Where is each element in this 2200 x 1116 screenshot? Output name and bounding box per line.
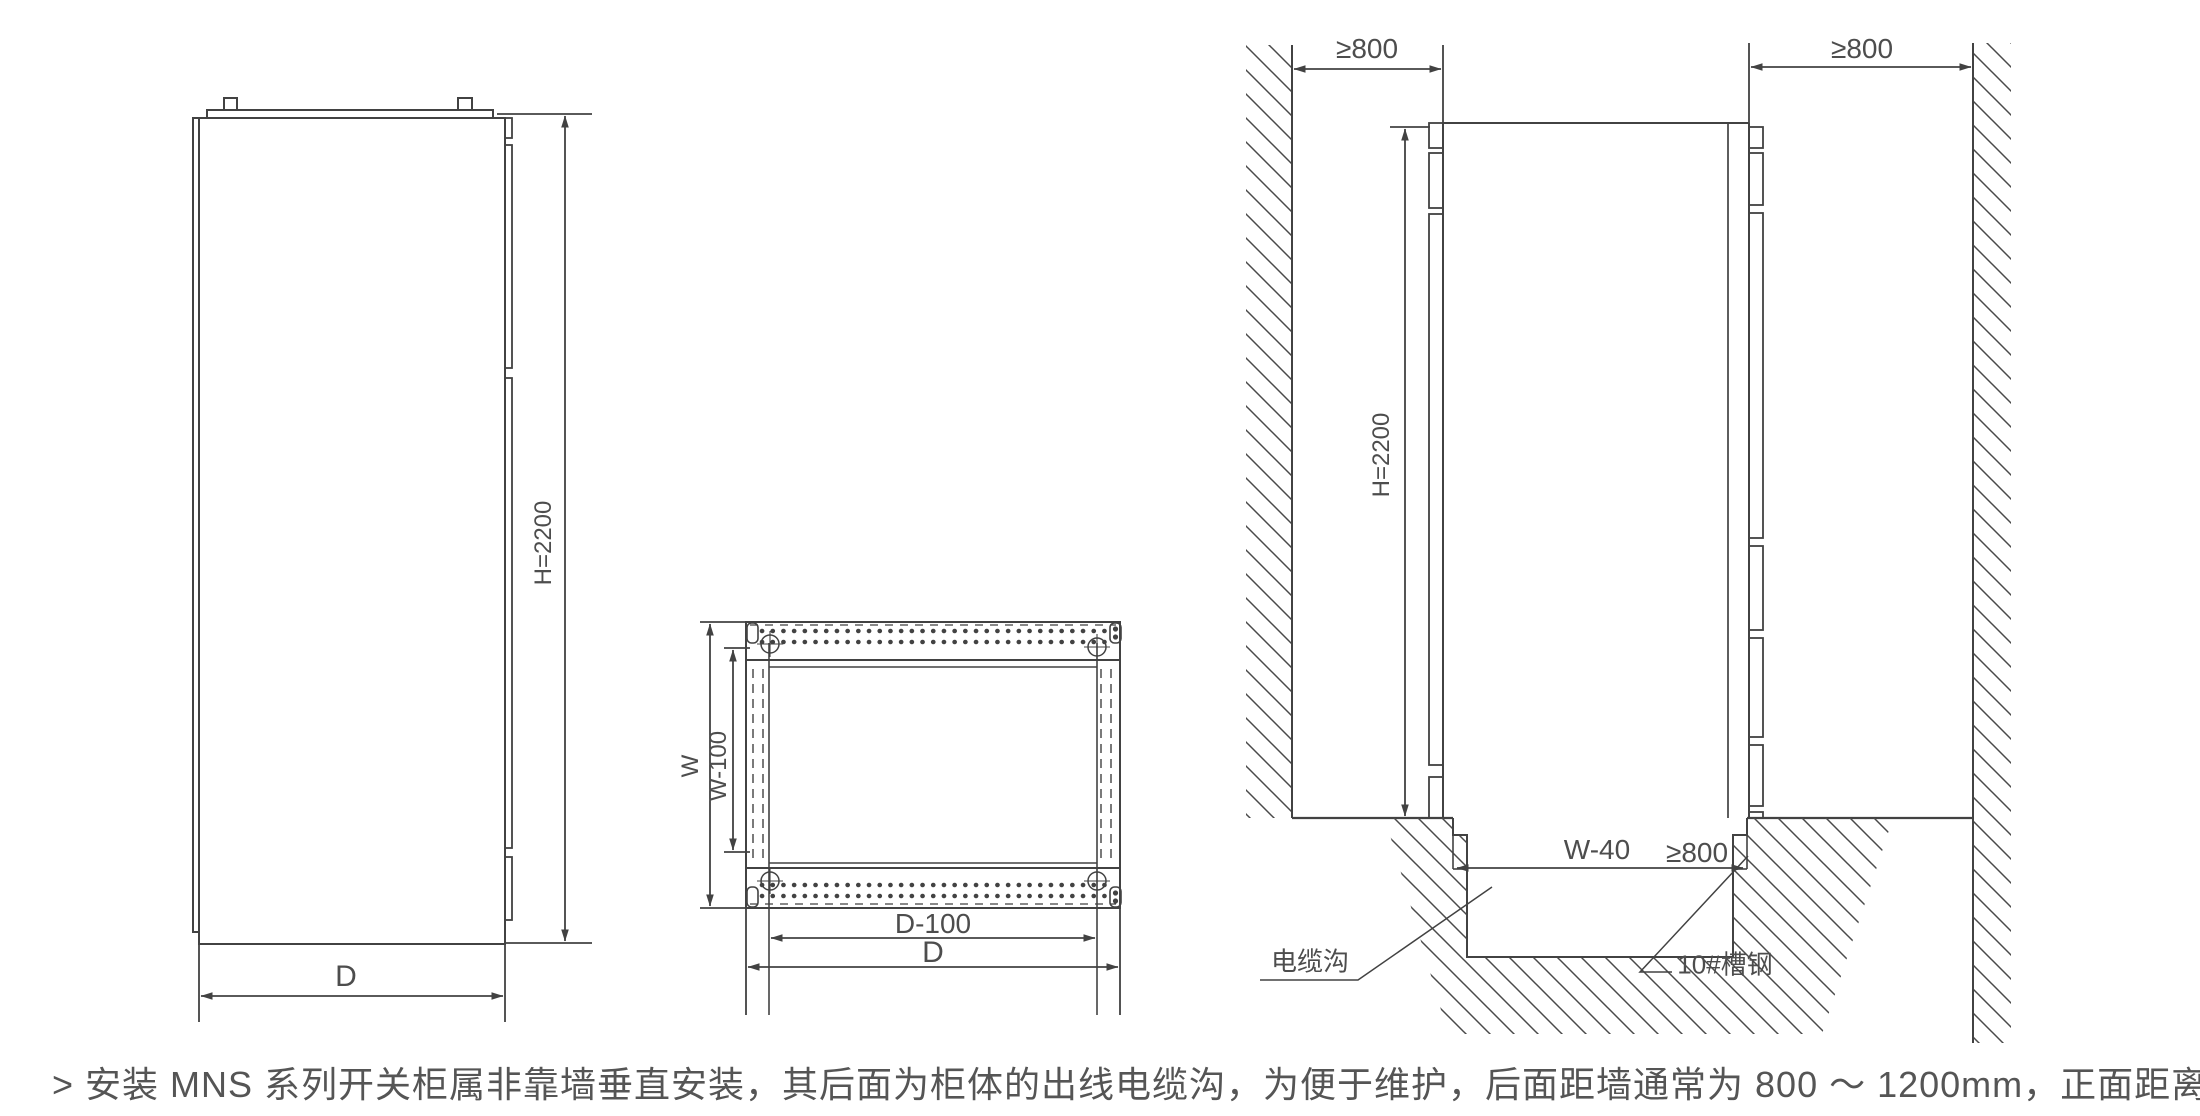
lifting-lug-right <box>458 98 472 110</box>
aisle-clearance-label: ≥800 <box>1666 837 1728 869</box>
install-height-label: H=2200 <box>1368 413 1396 498</box>
perforated-strip-bottom <box>750 885 1116 904</box>
rear-wall-hatch <box>1246 45 1292 818</box>
side-depth-label: D <box>335 960 357 994</box>
plan-inner-width-label: W-100 <box>705 731 733 801</box>
lifting-lug-left <box>224 98 237 110</box>
base-frame-outline <box>746 622 1120 908</box>
ground-section-hatch <box>1385 818 1893 1034</box>
plan-depth-label: D <box>922 936 944 970</box>
trench-width-label: W-40 <box>1564 834 1630 866</box>
side-height-label: H=2200 <box>530 501 558 586</box>
perforated-strip-top <box>750 625 1116 642</box>
front-wall-hatch <box>1973 43 2011 1043</box>
technical-drawing <box>0 0 2200 1116</box>
cable-trench-label: 电缆沟 <box>1271 942 1349 979</box>
install-view <box>1246 43 2011 1043</box>
engineering-drawing-page: H=2200 D W W-100 D-100 D ≥800 ≥800 H=220… <box>0 0 2200 1116</box>
side-rails-hidden-lines <box>753 669 1111 861</box>
rear-clearance-label: ≥800 <box>1336 33 1398 65</box>
rear-rail-segments <box>505 118 512 920</box>
top-plate <box>207 110 493 118</box>
cabinet-rear-rail-segments <box>1429 123 1443 818</box>
cabinet-body-side <box>199 118 505 944</box>
plan-width-label: W <box>677 755 705 778</box>
installation-note: > 安装 MNS 系列开关柜属非靠墙垂直安装，其后面为柜体的出线电缆沟，为便于维… <box>52 1056 2200 1108</box>
front-door-edge <box>193 118 199 932</box>
plan-view <box>700 622 1121 1015</box>
channel-steel-label: 10#槽钢 <box>1677 945 1772 982</box>
cabinet-front-rail-segments <box>1749 127 1763 818</box>
cabinet-section <box>1443 123 1749 818</box>
corner-brackets <box>747 623 1121 907</box>
mounting-hole-crosshairs <box>757 631 1110 894</box>
install-height-dimension <box>1390 127 1430 816</box>
front-clearance-label: ≥800 <box>1831 33 1893 65</box>
